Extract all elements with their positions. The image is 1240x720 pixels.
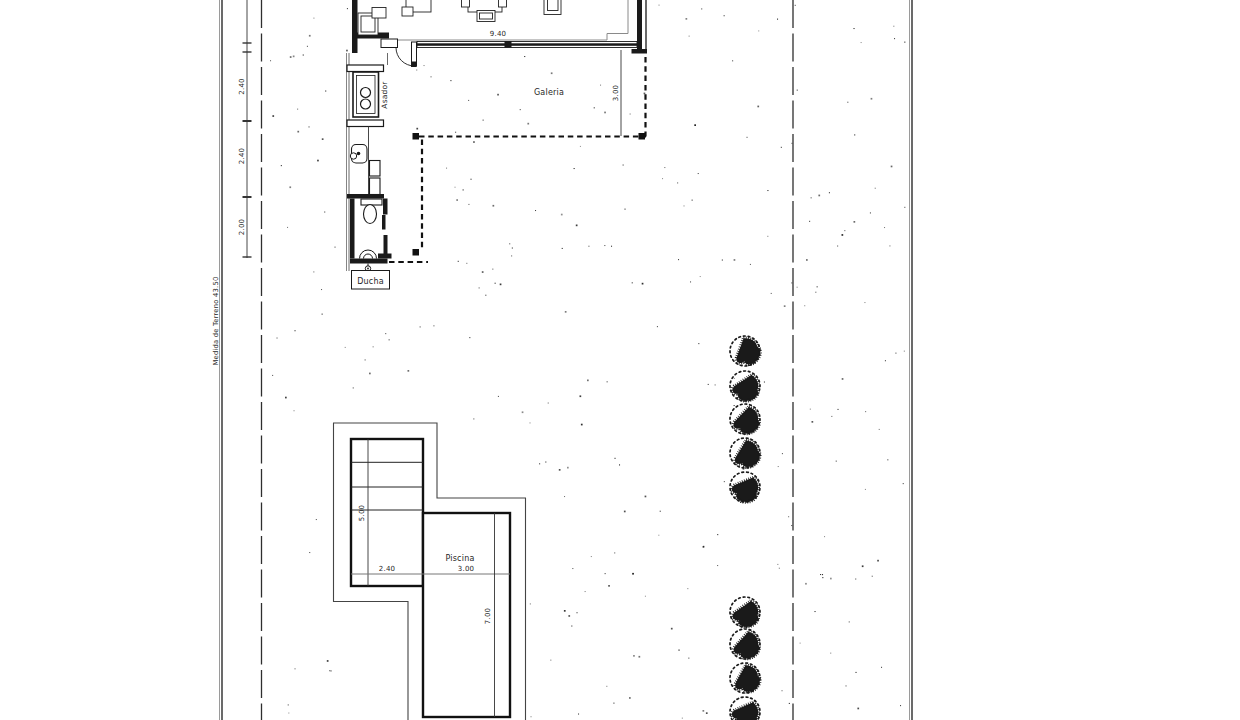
tree-symbol: [725, 467, 764, 506]
galeria: 3.00 Galeria: [389, 50, 646, 262]
dining-chair-bottom-seat: [480, 13, 493, 19]
furniture: [358, 0, 561, 35]
tree-symbol: [726, 693, 765, 720]
asador-grill: [353, 72, 379, 117]
galeria-label: Galeria: [534, 88, 564, 97]
site-plan-page: 2.40 2.40 2.00 Medida de Terreno 43.50: [0, 0, 1240, 720]
window-band-glass: [417, 43, 637, 46]
pool: 5.00 2.40 3.00 7.00 Piscina: [334, 423, 526, 720]
counter-cap-top: [347, 65, 384, 72]
wall-end-cap: [381, 39, 398, 48]
galeria-dashed-edge: [389, 57, 646, 262]
toilet-bowl: [364, 205, 377, 224]
dim-left-1: 2.40: [238, 78, 246, 94]
galeria-post: [639, 133, 646, 140]
chair-top-right-seat: [548, 0, 559, 11]
counter-cap-bottom: [347, 120, 384, 127]
asador-label: Asador: [380, 81, 389, 109]
dim-pool-right-length: 7.00: [484, 608, 492, 624]
galeria-post: [413, 133, 420, 140]
dim-pool-left-length: 5.00: [358, 505, 366, 521]
right-exterior-wall: [637, 0, 642, 50]
toilet-tank: [361, 199, 382, 205]
stool: [370, 161, 381, 177]
stool: [370, 178, 381, 195]
tree-symbol: [727, 435, 763, 471]
shower-tray-arc: [360, 250, 377, 259]
site-plan-drawing: 2.40 2.40 2.00 Medida de Terreno 43.50: [0, 0, 1240, 720]
dim-pool-left-width: 2.40: [379, 565, 395, 573]
outdoor-fixtures-strip: Asador Ducha: [347, 53, 392, 289]
building: 9.40: [352, 0, 647, 67]
dining-chair-right: [499, 0, 507, 7]
dim-pool-right-width: 3.00: [458, 565, 474, 573]
wc-door-leaf: [382, 215, 386, 230]
chair-top-left-arm: [402, 7, 413, 16]
piscina-label: Piscina: [445, 554, 474, 563]
tree-symbol: [730, 404, 761, 435]
tree-symbol: [725, 331, 765, 371]
galeria-post: [413, 249, 420, 256]
wc-room: [347, 194, 388, 259]
dim-left-3: 2.00: [238, 219, 246, 235]
shower-room: [350, 235, 392, 271]
dim-left-2: 2.40: [238, 148, 246, 164]
counter-piece: [372, 8, 386, 19]
dim-galeria-depth: 3.00: [612, 85, 620, 101]
ducha-label: Ducha: [357, 277, 384, 286]
property-boundary-lines: [220, 0, 913, 720]
tree-symbol: [729, 628, 761, 660]
sink: [350, 145, 367, 164]
pool-basin-right: [423, 513, 510, 717]
tree-rows: [725, 331, 765, 720]
terrain-measure-label: Medida de Terreno 43.50: [212, 277, 220, 366]
tree-symbol: [728, 595, 763, 630]
tree-symbol: [726, 659, 763, 696]
window-mullion: [505, 41, 512, 48]
interior-wall-face: [397, 0, 628, 40]
dining-chair-left: [462, 0, 470, 7]
right-wall-end-cap: [632, 49, 648, 54]
dim-building-width: 9.40: [490, 30, 506, 38]
left-exterior-wall: [352, 0, 358, 53]
tree-symbol: [727, 368, 763, 404]
